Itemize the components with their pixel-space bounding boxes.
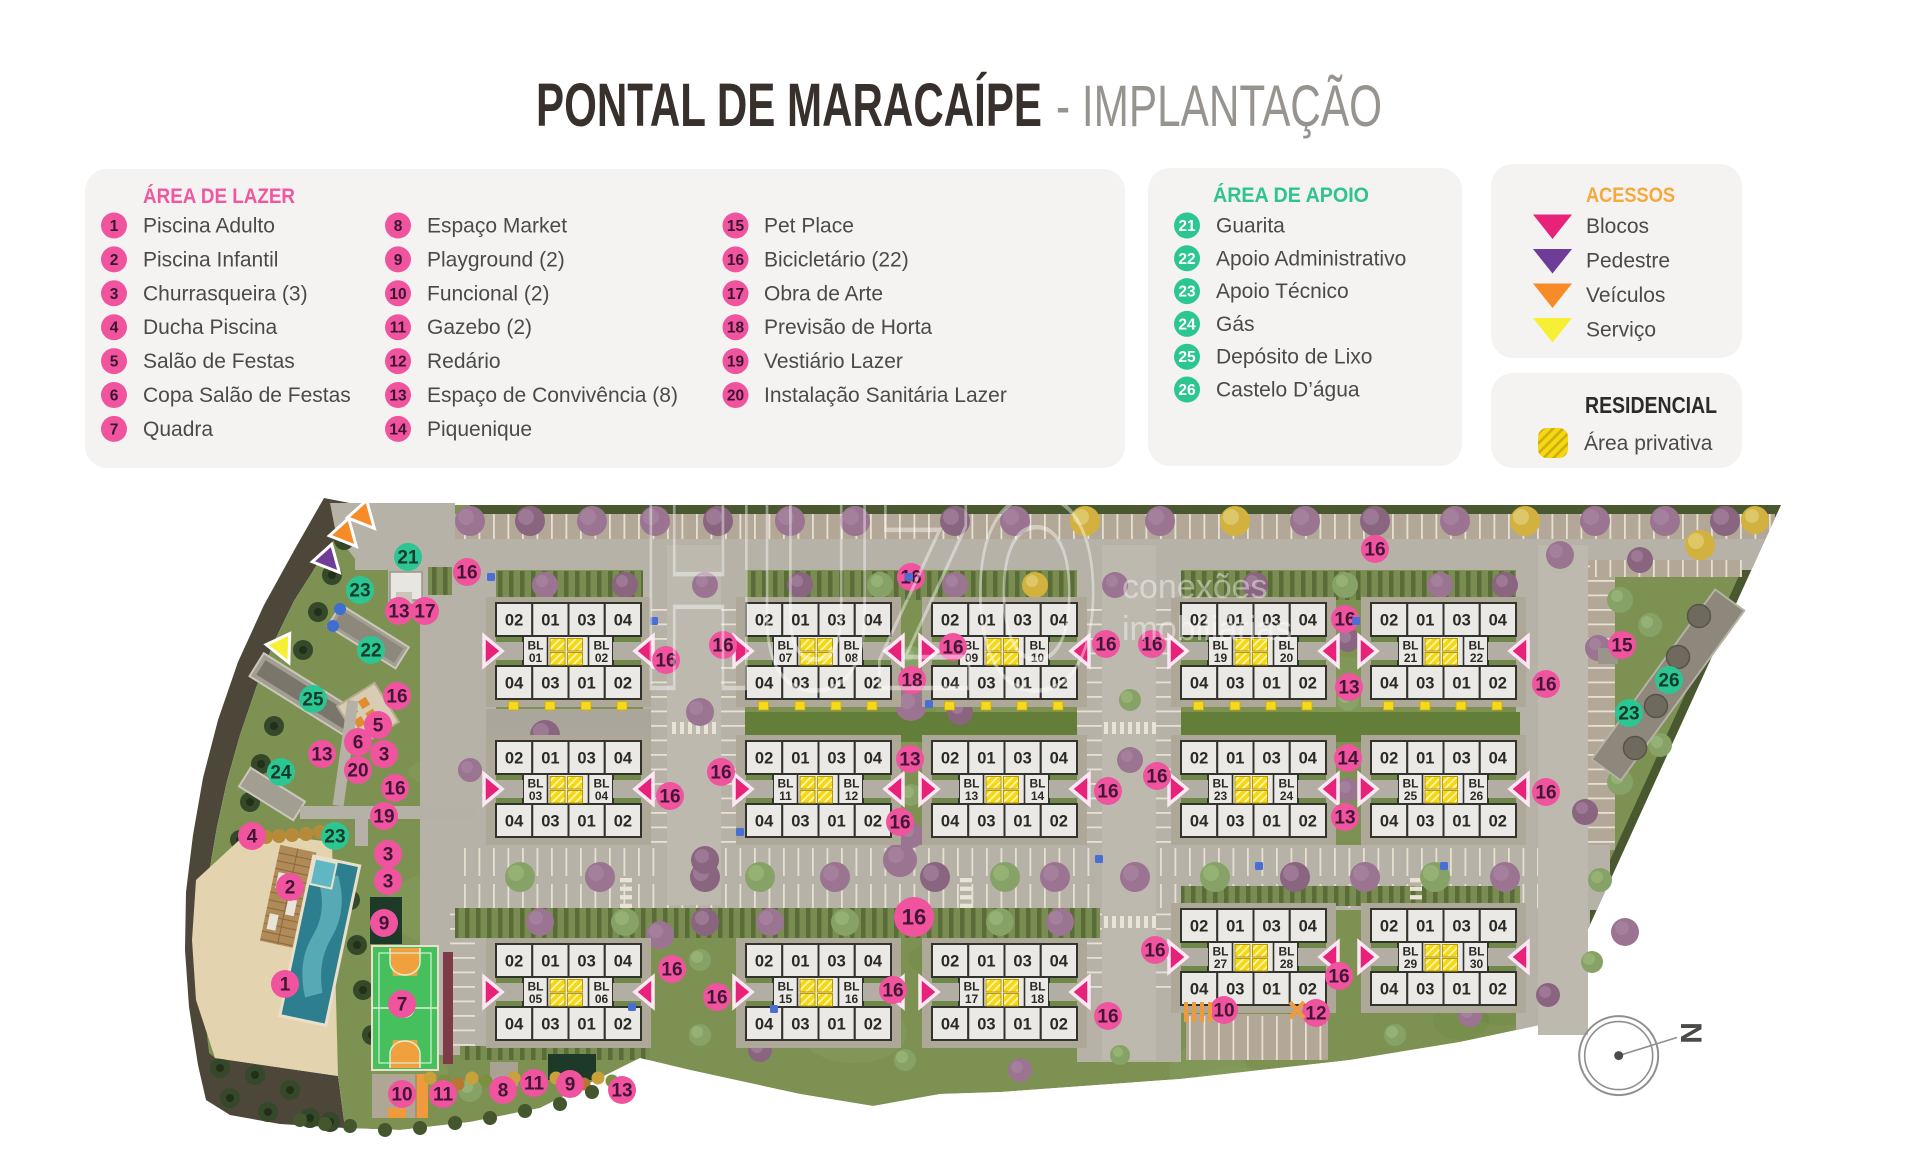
svg-text:04: 04 (1380, 981, 1399, 999)
svg-text:03: 03 (529, 789, 543, 803)
svg-text:15: 15 (727, 218, 745, 235)
svg-text:01: 01 (791, 750, 809, 768)
svg-text:25: 25 (1404, 789, 1418, 803)
svg-text:16: 16 (386, 687, 407, 708)
svg-text:16: 16 (1144, 941, 1165, 962)
svg-text:Blocos: Blocos (1586, 215, 1649, 238)
svg-text:03: 03 (1226, 813, 1244, 831)
svg-text:17: 17 (965, 992, 979, 1006)
svg-text:04: 04 (505, 813, 524, 831)
svg-text:Espaço Market: Espaço Market (427, 215, 567, 238)
svg-text:03: 03 (1226, 675, 1244, 693)
svg-text:Piscina Adulto: Piscina Adulto (143, 215, 275, 238)
svg-text:03: 03 (791, 1016, 809, 1034)
svg-text:16: 16 (889, 813, 910, 834)
svg-text:04: 04 (614, 750, 633, 768)
svg-text:02: 02 (1190, 918, 1208, 936)
svg-text:03: 03 (977, 813, 995, 831)
svg-text:16: 16 (902, 905, 926, 930)
svg-text:03: 03 (541, 675, 559, 693)
svg-text:02: 02 (1380, 750, 1398, 768)
svg-text:6: 6 (353, 733, 364, 754)
svg-text:9: 9 (379, 914, 390, 935)
svg-text:21: 21 (397, 548, 419, 569)
svg-text:04: 04 (1299, 612, 1318, 630)
svg-text:16: 16 (1146, 767, 1167, 788)
svg-text:01: 01 (1262, 813, 1280, 831)
svg-text:03: 03 (1262, 918, 1280, 936)
svg-text:01: 01 (1013, 813, 1031, 831)
svg-text:13: 13 (1338, 678, 1359, 699)
svg-text:04: 04 (864, 750, 883, 768)
svg-text:Espaço de Convivência (8): Espaço de Convivência (8) (427, 384, 678, 407)
svg-text:3: 3 (110, 286, 119, 303)
svg-text:01: 01 (577, 813, 595, 831)
svg-text:03: 03 (1416, 981, 1434, 999)
svg-text:01: 01 (977, 750, 995, 768)
svg-text:13: 13 (899, 750, 920, 771)
svg-text:conexões: conexões (1122, 568, 1268, 606)
svg-text:21: 21 (1178, 218, 1196, 235)
svg-text:01: 01 (541, 953, 559, 971)
svg-text:4: 4 (110, 320, 119, 337)
svg-text:23: 23 (1214, 789, 1228, 803)
svg-text:12: 12 (389, 354, 406, 371)
svg-text:3: 3 (379, 745, 390, 766)
svg-text:01: 01 (1416, 918, 1434, 936)
svg-text:7: 7 (110, 421, 119, 438)
svg-text:17: 17 (414, 602, 435, 623)
svg-text:04: 04 (505, 1016, 524, 1034)
svg-text:02: 02 (864, 813, 882, 831)
svg-text:20: 20 (727, 388, 744, 405)
svg-text:16: 16 (706, 988, 727, 1009)
svg-text:02: 02 (1489, 675, 1507, 693)
svg-text:11: 11 (779, 789, 792, 803)
svg-text:04: 04 (1190, 981, 1209, 999)
svg-text:Pedestre: Pedestre (1586, 250, 1670, 273)
svg-text:03: 03 (827, 953, 845, 971)
svg-text:26: 26 (1470, 789, 1484, 803)
svg-text:02: 02 (1190, 750, 1208, 768)
svg-text:02: 02 (1380, 612, 1398, 630)
svg-text:Gazebo (2): Gazebo (2) (427, 316, 532, 339)
svg-text:23: 23 (349, 581, 370, 602)
svg-text:03: 03 (1226, 981, 1244, 999)
svg-text:02: 02 (505, 750, 523, 768)
svg-text:23: 23 (1618, 704, 1639, 725)
svg-text:04: 04 (1299, 918, 1318, 936)
svg-text:03: 03 (541, 813, 559, 831)
svg-text:Funcional (2): Funcional (2) (427, 282, 550, 305)
svg-text:04: 04 (1050, 750, 1069, 768)
svg-text:04: 04 (1380, 813, 1399, 831)
svg-text:Ducha Piscina: Ducha Piscina (143, 316, 278, 339)
svg-text:15: 15 (779, 992, 793, 1006)
svg-text:03: 03 (1013, 750, 1031, 768)
svg-text:02: 02 (1050, 813, 1068, 831)
svg-text:01: 01 (1226, 918, 1244, 936)
svg-text:Apoio Administrativo: Apoio Administrativo (1216, 247, 1406, 270)
svg-text:13: 13 (389, 388, 407, 405)
svg-text:04: 04 (755, 1016, 774, 1034)
svg-text:02: 02 (1489, 981, 1507, 999)
svg-text:04: 04 (614, 953, 633, 971)
svg-text:15: 15 (1611, 636, 1633, 657)
svg-text:23: 23 (324, 827, 345, 848)
svg-text:01: 01 (1452, 813, 1470, 831)
svg-text:22: 22 (1178, 251, 1195, 268)
svg-text:01: 01 (1226, 750, 1244, 768)
svg-text:01: 01 (1262, 981, 1280, 999)
svg-text:04: 04 (1190, 813, 1209, 831)
svg-text:03: 03 (977, 1016, 995, 1034)
svg-text:Piquenique: Piquenique (427, 418, 532, 441)
svg-text:ÁREA DE APOIO: ÁREA DE APOIO (1213, 184, 1369, 207)
svg-text:Previsão de Horta: Previsão de Horta (764, 316, 932, 339)
svg-text:06: 06 (595, 992, 609, 1006)
svg-text:03: 03 (1013, 953, 1031, 971)
svg-text:01: 01 (1452, 981, 1470, 999)
svg-text:02: 02 (595, 651, 609, 665)
svg-text:ACESSOS: ACESSOS (1586, 184, 1675, 207)
svg-text:02: 02 (1489, 813, 1507, 831)
svg-text:20: 20 (347, 761, 368, 782)
svg-text:03: 03 (827, 750, 845, 768)
svg-text:01: 01 (1452, 675, 1470, 693)
svg-text:14: 14 (389, 421, 407, 438)
svg-text:21: 21 (1404, 651, 1418, 665)
svg-text:Bicicletário (22): Bicicletário (22) (764, 248, 909, 271)
svg-text:- IMPLANTAÇÃO: - IMPLANTAÇÃO (1056, 74, 1382, 139)
svg-text:ÁREA DE LAZER: ÁREA DE LAZER (143, 185, 295, 208)
svg-text:02: 02 (755, 953, 773, 971)
svg-text:01: 01 (577, 675, 595, 693)
svg-text:9: 9 (394, 252, 403, 269)
svg-text:03: 03 (577, 612, 595, 630)
svg-text:12: 12 (1305, 1004, 1326, 1025)
svg-text:Guarita: Guarita (1216, 215, 1285, 238)
svg-text:01: 01 (1416, 612, 1434, 630)
svg-text:25: 25 (302, 690, 324, 711)
svg-text:24: 24 (1178, 316, 1196, 333)
svg-text:Piscina Infantil: Piscina Infantil (143, 248, 278, 271)
svg-text:3: 3 (383, 845, 394, 866)
svg-text:1: 1 (110, 218, 119, 235)
svg-text:04: 04 (505, 675, 524, 693)
svg-text:02: 02 (941, 750, 959, 768)
svg-text:19: 19 (373, 807, 394, 828)
svg-text:01: 01 (541, 612, 559, 630)
svg-text:05: 05 (529, 992, 543, 1006)
svg-text:10: 10 (391, 1085, 412, 1106)
svg-text:02: 02 (614, 675, 632, 693)
svg-text:Quadra: Quadra (143, 418, 213, 441)
svg-text:01: 01 (541, 750, 559, 768)
svg-text:03: 03 (577, 750, 595, 768)
svg-text:04: 04 (595, 789, 609, 803)
svg-text:01: 01 (1416, 750, 1434, 768)
svg-text:13: 13 (1334, 808, 1355, 829)
svg-text:Castelo D’água: Castelo D’água (1216, 379, 1360, 402)
svg-text:16: 16 (1535, 675, 1556, 696)
svg-text:16: 16 (384, 779, 405, 800)
svg-text:01: 01 (791, 953, 809, 971)
svg-text:18: 18 (1031, 992, 1045, 1006)
svg-text:01: 01 (1262, 675, 1280, 693)
svg-text:RESIDENCIAL: RESIDENCIAL (1585, 392, 1717, 418)
svg-text:22: 22 (360, 641, 381, 662)
svg-text:02: 02 (1050, 1016, 1068, 1034)
svg-text:2: 2 (285, 878, 296, 899)
svg-text:03: 03 (1452, 918, 1470, 936)
svg-text:16: 16 (1097, 782, 1118, 803)
svg-text:13: 13 (611, 1081, 632, 1102)
svg-text:8: 8 (498, 1081, 509, 1102)
svg-text:02: 02 (505, 612, 523, 630)
svg-text:PONTAL DE MARACAÍPE: PONTAL DE MARACAÍPE (536, 71, 1042, 139)
svg-text:03: 03 (1452, 612, 1470, 630)
svg-text:02: 02 (1380, 918, 1398, 936)
svg-text:04: 04 (1489, 750, 1508, 768)
svg-text:14: 14 (1337, 749, 1359, 770)
svg-text:2: 2 (110, 252, 119, 269)
svg-text:04: 04 (1380, 675, 1399, 693)
svg-text:26: 26 (1178, 382, 1196, 399)
svg-text:02: 02 (755, 750, 773, 768)
svg-text:17: 17 (727, 286, 744, 303)
svg-text:9: 9 (565, 1075, 576, 1096)
svg-text:16: 16 (659, 787, 680, 808)
svg-text:16: 16 (1328, 967, 1349, 988)
svg-text:10: 10 (1213, 1001, 1234, 1022)
svg-text:02: 02 (864, 1016, 882, 1034)
svg-text:13: 13 (388, 602, 409, 623)
svg-text:13: 13 (965, 789, 979, 803)
svg-text:04: 04 (1299, 750, 1318, 768)
svg-text:8: 8 (394, 218, 403, 235)
svg-text:19: 19 (727, 354, 745, 371)
svg-text:13: 13 (311, 745, 332, 766)
svg-text:16: 16 (1535, 783, 1556, 804)
svg-text:02: 02 (1299, 813, 1317, 831)
svg-text:22: 22 (1470, 651, 1484, 665)
svg-text:14: 14 (1031, 789, 1045, 803)
svg-text:03: 03 (791, 813, 809, 831)
svg-text:11: 11 (433, 1085, 454, 1106)
svg-text:Pet Place: Pet Place (764, 215, 854, 238)
svg-text:Salão de Festas: Salão de Festas (143, 350, 295, 373)
svg-text:02: 02 (614, 1016, 632, 1034)
svg-text:28: 28 (1280, 957, 1294, 971)
svg-text:02: 02 (1299, 981, 1317, 999)
svg-text:02: 02 (1299, 675, 1317, 693)
svg-text:03: 03 (541, 1016, 559, 1034)
svg-text:3: 3 (383, 872, 394, 893)
svg-text:25: 25 (1178, 349, 1196, 366)
svg-text:01: 01 (827, 813, 845, 831)
svg-text:Instalação Sanitária Lazer: Instalação Sanitária Lazer (764, 384, 1007, 407)
svg-text:Vestiário Lazer: Vestiário Lazer (764, 350, 903, 373)
svg-text:03: 03 (1416, 813, 1434, 831)
svg-text:27: 27 (1214, 957, 1228, 971)
svg-text:Playground (2): Playground (2) (427, 248, 565, 271)
svg-text:01: 01 (1013, 1016, 1031, 1034)
svg-text:16: 16 (1364, 540, 1385, 561)
svg-text:Serviço: Serviço (1586, 319, 1656, 342)
svg-text:04: 04 (941, 813, 960, 831)
svg-text:Depósito de Lixo: Depósito de Lixo (1216, 346, 1372, 369)
svg-text:11: 11 (524, 1074, 545, 1095)
svg-text:02: 02 (941, 953, 959, 971)
svg-text:16: 16 (661, 960, 682, 981)
svg-text:1: 1 (280, 975, 291, 996)
svg-text:12: 12 (845, 789, 859, 803)
svg-text:16: 16 (882, 981, 903, 1002)
svg-text:01: 01 (977, 953, 995, 971)
svg-text:04: 04 (864, 953, 883, 971)
svg-text:04: 04 (755, 813, 774, 831)
svg-text:Área privativa: Área privativa (1584, 432, 1713, 455)
svg-text:Obra de Arte: Obra de Arte (764, 282, 883, 305)
svg-text:26: 26 (1658, 671, 1679, 692)
svg-text:5: 5 (373, 716, 384, 737)
svg-text:19: 19 (1214, 651, 1228, 665)
svg-text:04: 04 (1489, 918, 1508, 936)
svg-text:imobiliárias: imobiliárias (1122, 610, 1292, 648)
svg-text:Redário: Redário (427, 350, 501, 373)
svg-text:7: 7 (397, 995, 408, 1016)
svg-text:29: 29 (1404, 957, 1418, 971)
svg-text:10: 10 (389, 286, 406, 303)
svg-text:16: 16 (710, 763, 731, 784)
svg-text:04: 04 (1190, 675, 1209, 693)
svg-text:Veículos: Veículos (1586, 284, 1665, 307)
svg-text:16: 16 (1097, 1007, 1118, 1028)
svg-text:Apoio Técnico: Apoio Técnico (1216, 280, 1349, 303)
svg-text:24: 24 (1280, 789, 1294, 803)
svg-text:6: 6 (110, 388, 119, 405)
svg-text:Gás: Gás (1216, 313, 1255, 336)
svg-text:03: 03 (1262, 750, 1280, 768)
svg-text:04: 04 (614, 612, 633, 630)
svg-text:02: 02 (505, 953, 523, 971)
svg-text:16: 16 (727, 252, 745, 269)
svg-text:11: 11 (390, 320, 407, 337)
svg-text:03: 03 (1452, 750, 1470, 768)
svg-text:04: 04 (941, 1016, 960, 1034)
svg-text:18: 18 (727, 320, 745, 337)
svg-text:04: 04 (1489, 612, 1508, 630)
svg-text:HUZO: HUZO (640, 440, 1100, 747)
svg-text:30: 30 (1470, 957, 1484, 971)
svg-text:03: 03 (1416, 675, 1434, 693)
svg-text:04: 04 (1050, 953, 1069, 971)
svg-text:16: 16 (456, 563, 477, 584)
svg-text:5: 5 (110, 354, 119, 371)
svg-text:Copa Salão de Festas: Copa Salão de Festas (143, 384, 351, 407)
svg-text:23: 23 (1178, 284, 1196, 301)
svg-text:01: 01 (577, 1016, 595, 1034)
svg-text:02: 02 (614, 813, 632, 831)
svg-text:N: N (1674, 1022, 1707, 1044)
svg-text:01: 01 (529, 651, 543, 665)
svg-text:Churrasqueira (3): Churrasqueira (3) (143, 282, 308, 305)
svg-text:4: 4 (247, 827, 258, 848)
svg-text:20: 20 (1280, 651, 1294, 665)
svg-text:24: 24 (270, 763, 292, 784)
svg-text:03: 03 (577, 953, 595, 971)
svg-text:16: 16 (845, 992, 859, 1006)
svg-text:01: 01 (827, 1016, 845, 1034)
